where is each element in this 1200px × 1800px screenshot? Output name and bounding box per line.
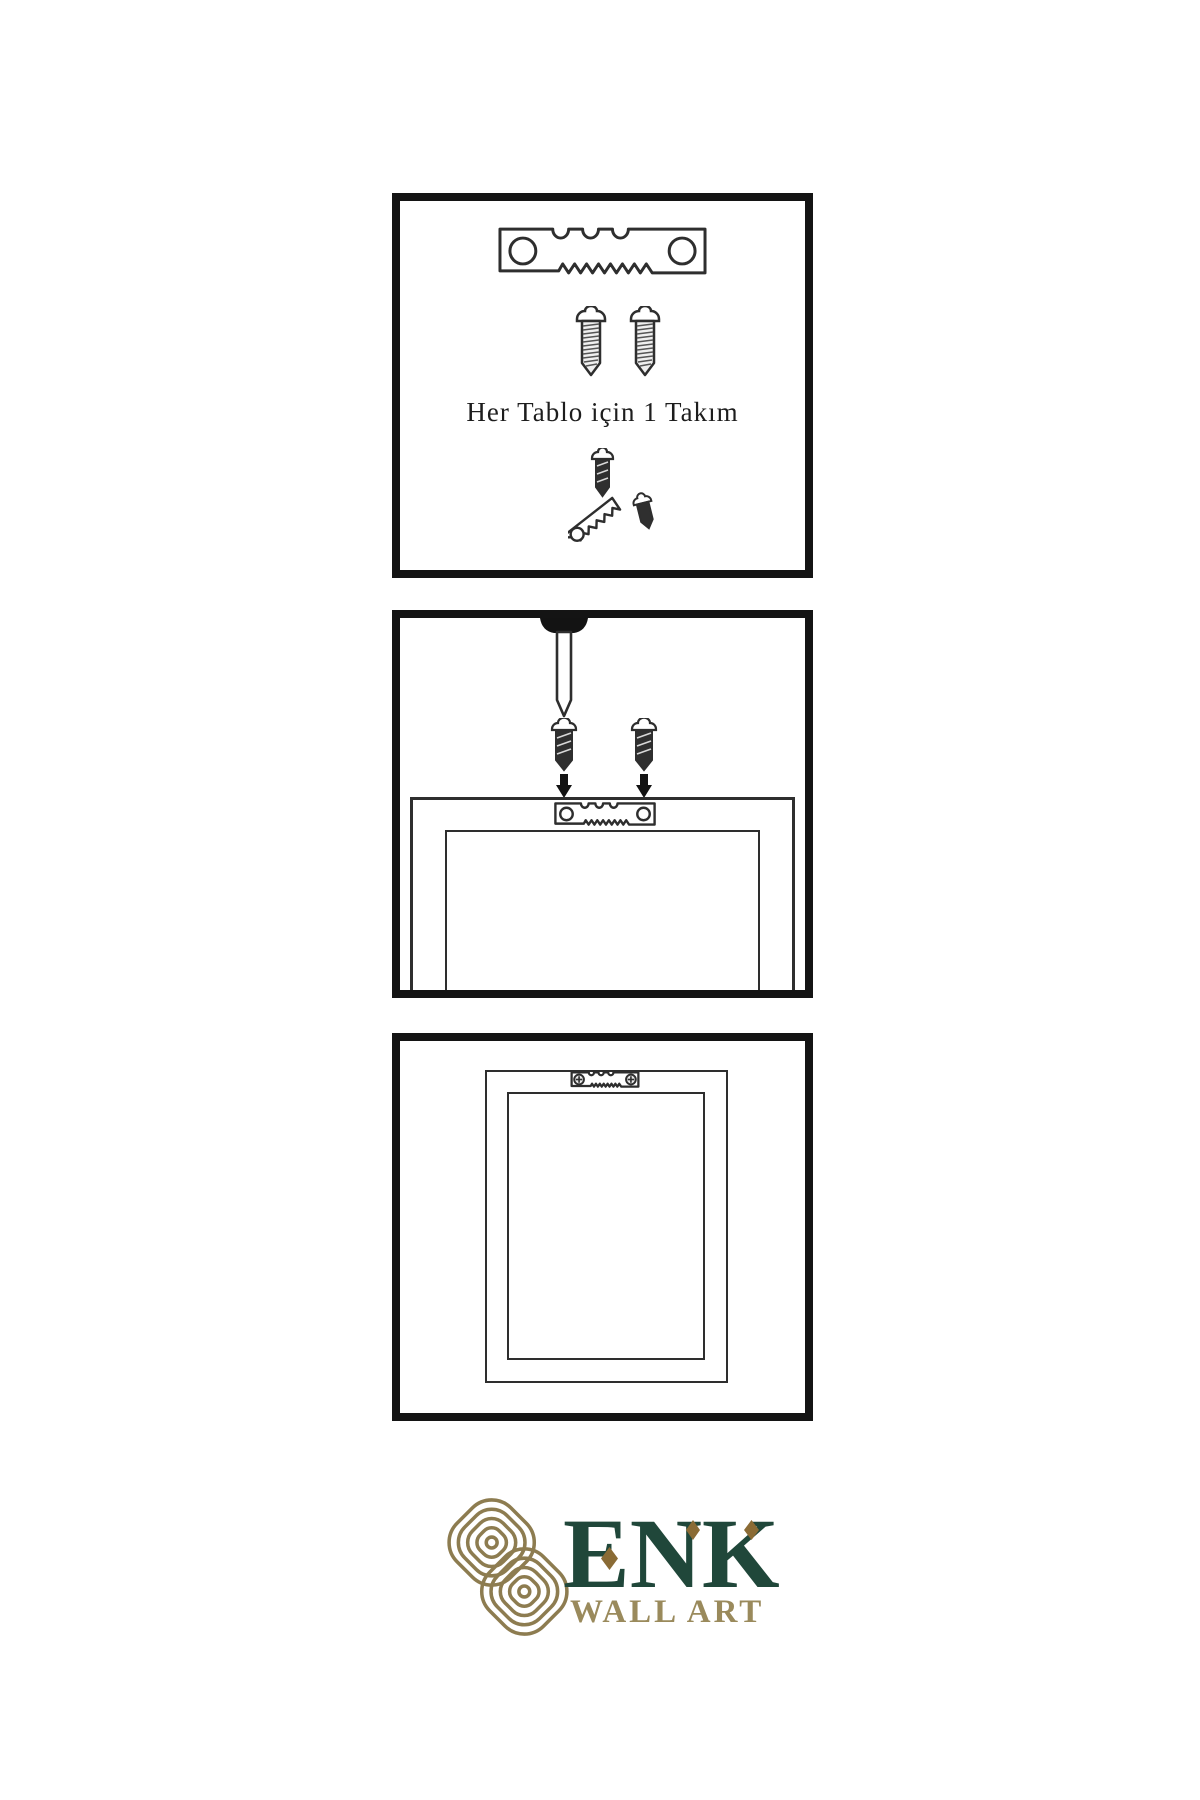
screw-icon [549,718,579,772]
step-panel-3 [392,1033,813,1421]
knot-logo-icon [440,1496,576,1638]
brand-name: ENK [563,1504,823,1604]
step-panel-2 [392,610,813,998]
sawtooth-hanger-mounted-icon [570,1070,640,1089]
screw-icon [627,306,663,382]
frame-back-inner [507,1092,705,1360]
wall-nail-icon [540,618,588,722]
screw-icon [573,306,609,382]
screw-into-hanger-icon [568,448,668,554]
mounting-screw-head-icon [574,1075,584,1085]
brand-subtitle: WALL ART [570,1594,830,1631]
frame-back-inner [445,830,760,998]
step-caption: Her Tablo için 1 Takım [400,397,805,428]
screw-small-icon [631,491,657,530]
sawtooth-hanger-icon [495,223,710,279]
angled-sawtooth-hanger [568,498,621,548]
sawtooth-hanger-on-frame-icon [553,800,657,828]
mounting-screw-head-icon [626,1075,636,1085]
screw-icon [629,718,659,772]
instruction-sheet: Her Tablo için 1 Takım [0,0,1200,1800]
down-arrow-icon [556,774,572,798]
down-arrow-icon [636,774,652,798]
step-panel-1: Her Tablo için 1 Takım [392,193,813,578]
